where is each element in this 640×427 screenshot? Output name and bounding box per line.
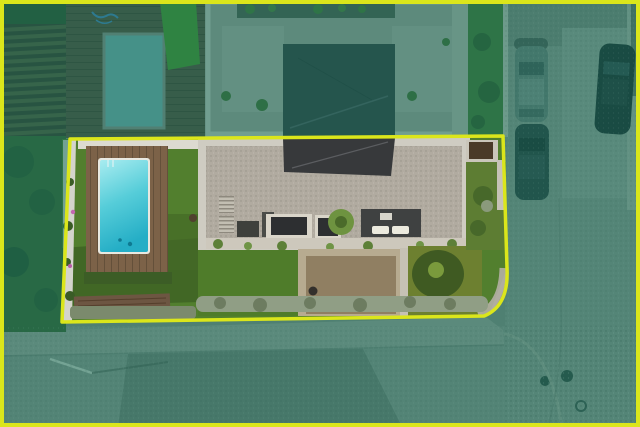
sun-lounger-2: [392, 226, 409, 234]
yard-palm: [428, 262, 444, 278]
grill: [309, 287, 318, 296]
screenshot-root: [0, 0, 640, 427]
lawn-object: [189, 214, 197, 222]
patio-cabinet-1: [237, 221, 259, 237]
dark-membrane-roof: [283, 138, 395, 176]
skylight-1-glass: [271, 217, 307, 235]
right-garden-bush-2: [470, 220, 486, 236]
hvac-unit-2: [219, 216, 234, 233]
hvac-unit-1: [219, 196, 234, 213]
swimming-pool: [100, 160, 148, 252]
walkway-shrub-1: [213, 239, 223, 249]
hedge-blotch-1: [214, 297, 226, 309]
side-table: [380, 213, 392, 220]
wall-bush-4: [65, 291, 75, 301]
pool-toy-1: [118, 238, 122, 242]
walkway-shrub-2: [244, 242, 252, 250]
hedge-blotch-2: [253, 298, 267, 312]
aerial-scene: [0, 0, 640, 427]
flower-pink-2: [68, 264, 72, 268]
bench-hedge: [70, 306, 196, 319]
garage-recess: [469, 142, 493, 159]
right-garden-bush-gray: [481, 200, 493, 212]
hedge-blotch-6: [444, 298, 456, 310]
deck-shadow: [84, 272, 172, 284]
flower-pink-1: [71, 210, 75, 214]
courtyard-palm-core: [335, 216, 347, 228]
sun-lounger-1: [372, 226, 389, 234]
hedge-blotch-3: [304, 297, 316, 309]
walkway-shrub-3: [277, 241, 287, 251]
hedge-blotch-4: [353, 298, 367, 312]
pool-toy-2: [128, 242, 132, 246]
hedge-blotch-5: [404, 296, 416, 308]
